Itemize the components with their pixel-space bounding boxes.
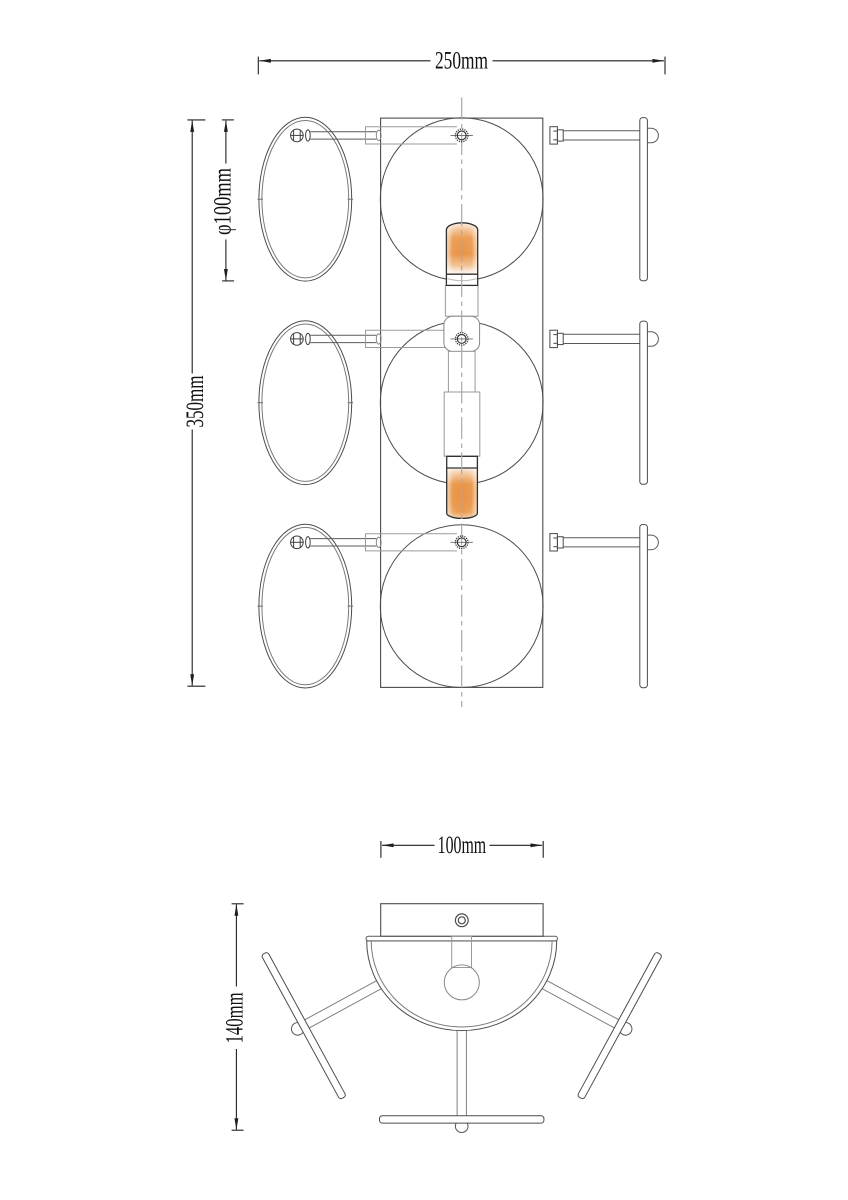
svg-text:φ100mm: φ100mm	[209, 168, 236, 235]
svg-text:250mm: 250mm	[435, 47, 488, 74]
svg-text:140mm: 140mm	[222, 992, 249, 1043]
svg-text:100mm: 100mm	[438, 832, 487, 859]
svg-text:350mm: 350mm	[182, 375, 209, 427]
